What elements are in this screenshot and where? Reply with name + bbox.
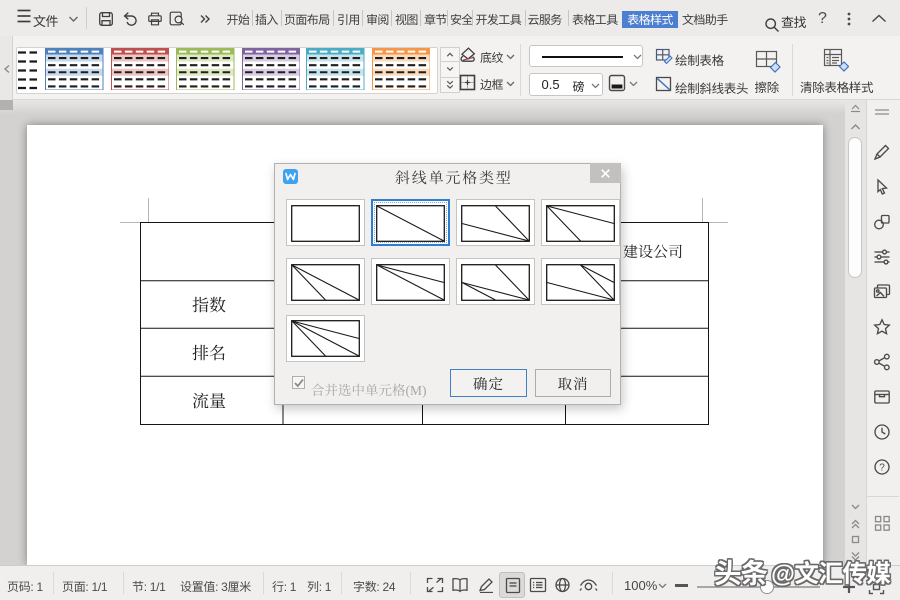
svg-text:?: ?: [879, 463, 885, 474]
